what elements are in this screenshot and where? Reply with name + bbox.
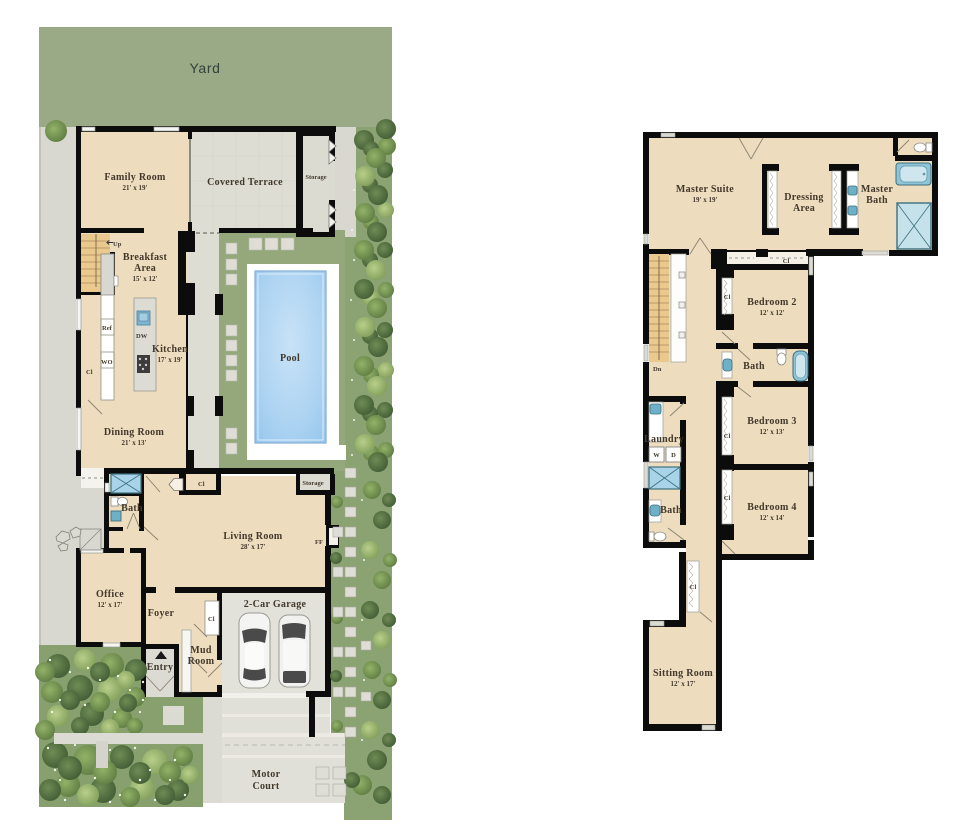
svg-text:FF: FF <box>315 539 323 546</box>
svg-text:DW: DW <box>136 333 148 340</box>
svg-text:Covered Terrace: Covered Terrace <box>207 177 283 188</box>
svg-text:Up: Up <box>113 241 122 248</box>
svg-text:Cl: Cl <box>783 258 790 265</box>
svg-text:Master Suite: Master Suite <box>676 184 734 195</box>
svg-text:Dn: Dn <box>653 366 662 373</box>
svg-text:12' x 14': 12' x 14' <box>760 514 785 522</box>
svg-text:Yard: Yard <box>190 60 221 76</box>
svg-text:Bath: Bath <box>743 361 765 372</box>
svg-text:Entry: Entry <box>147 662 174 673</box>
svg-text:17' x 19': 17' x 19' <box>158 356 183 364</box>
svg-text:12' x 17': 12' x 17' <box>98 601 123 609</box>
svg-text:Room: Room <box>188 656 215 667</box>
svg-text:12' x 13': 12' x 13' <box>760 428 785 436</box>
svg-text:Storage: Storage <box>305 174 326 181</box>
svg-text:Cl: Cl <box>724 433 731 440</box>
svg-text:Dressing: Dressing <box>784 192 823 203</box>
svg-text:Bath: Bath <box>866 195 888 206</box>
svg-text:Family Room: Family Room <box>104 172 166 183</box>
svg-text:28' x 17': 28' x 17' <box>241 543 266 551</box>
svg-text:12' x 17': 12' x 17' <box>671 680 696 688</box>
svg-text:Kitchen: Kitchen <box>152 344 188 355</box>
svg-text:Storage: Storage <box>302 480 323 487</box>
svg-text:Cl: Cl <box>724 495 731 502</box>
svg-text:Bedroom 3: Bedroom 3 <box>747 416 796 427</box>
svg-text:Master: Master <box>861 184 894 195</box>
svg-text:2-Car Garage: 2-Car Garage <box>244 599 307 610</box>
svg-text:Cl: Cl <box>690 584 697 591</box>
svg-text:Dining Room: Dining Room <box>104 427 165 438</box>
svg-text:15' x 12': 15' x 12' <box>133 275 158 283</box>
svg-text:19' x 19': 19' x 19' <box>693 196 718 204</box>
svg-text:Living Room: Living Room <box>223 531 283 542</box>
svg-text:21' x 19': 21' x 19' <box>123 184 148 192</box>
svg-text:Mud: Mud <box>190 645 212 656</box>
svg-text:Cl: Cl <box>724 294 731 301</box>
svg-text:WO: WO <box>101 359 113 366</box>
svg-text:Breakfast: Breakfast <box>123 252 168 263</box>
svg-text:Bath: Bath <box>121 503 143 514</box>
svg-text:Area: Area <box>793 203 815 214</box>
svg-text:D: D <box>671 452 676 459</box>
svg-text:Bedroom 2: Bedroom 2 <box>747 297 796 308</box>
svg-text:21' x 13': 21' x 13' <box>122 439 147 447</box>
svg-text:Cl: Cl <box>208 616 215 623</box>
svg-text:Laundry: Laundry <box>644 434 684 445</box>
svg-text:Court: Court <box>252 781 279 792</box>
svg-text:Cl: Cl <box>86 369 93 376</box>
svg-text:Office: Office <box>96 589 124 600</box>
svg-text:Cl: Cl <box>198 481 205 488</box>
svg-text:Ref: Ref <box>102 325 113 332</box>
svg-text:Bedroom 4: Bedroom 4 <box>747 502 796 513</box>
svg-text:Motor: Motor <box>252 769 281 780</box>
svg-text:Sitting Room: Sitting Room <box>653 668 713 679</box>
svg-text:Area: Area <box>134 263 156 274</box>
svg-text:W: W <box>653 452 660 459</box>
svg-text:Pool: Pool <box>280 353 300 364</box>
svg-text:Foyer: Foyer <box>148 608 175 619</box>
svg-text:12' x 12': 12' x 12' <box>760 309 785 317</box>
svg-text:Bath: Bath <box>660 505 682 516</box>
